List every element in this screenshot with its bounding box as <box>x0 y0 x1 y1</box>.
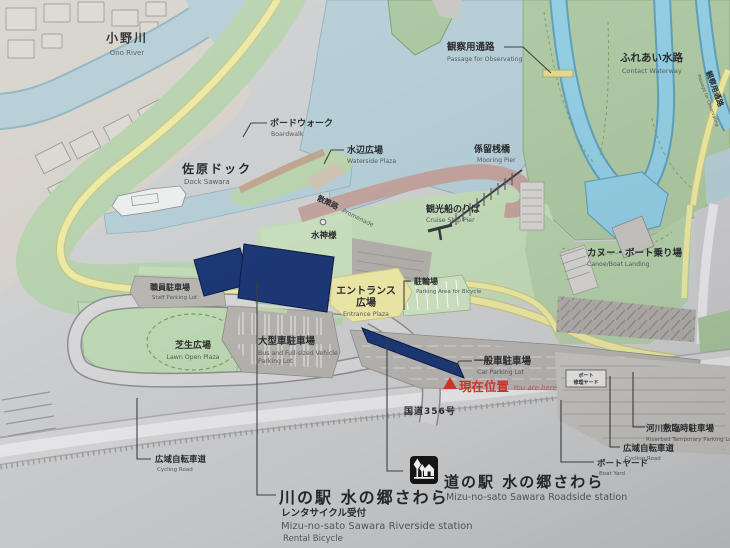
boat-yard-jp: ボートヤード <box>597 458 648 469</box>
observing-weir <box>543 70 573 77</box>
roadside-station-en: Mizu-no-sato Sawara Roadside station <box>446 492 627 503</box>
label-water-god: 水神様 <box>310 230 337 241</box>
canoe-jp: カヌー・ボート乗り場 <box>587 247 683 259</box>
park-map: 小野川 Ono River 観察用通路 Passage for Observat… <box>0 0 730 548</box>
staff-jp: 職員駐車場 <box>150 282 190 292</box>
roadside-station-jp: 道の駅 水の郷さわら <box>444 473 604 491</box>
ono-river-jp: 小野川 <box>106 30 148 45</box>
bus-en2: Parking Lot <box>258 358 293 365</box>
urban-building <box>44 4 70 22</box>
dock-sawara-en: Dock Sawara <box>184 178 230 186</box>
riverbed-jp: 河川敷臨時駐車場 <box>646 423 715 434</box>
dock-sawara-jp: 佐原ドック <box>181 161 252 176</box>
cruise-pier-en: Cruise Ship Pier <box>426 217 475 224</box>
bicycle-jp: 駐輪場 <box>414 276 438 286</box>
label-ono-river: 小野川 Ono River <box>106 30 148 57</box>
riverside-station-jp-sub: レンタサイクル受付 <box>281 507 367 519</box>
label-car-parking: 一般車駐車場 Car Parking Lot <box>474 355 532 376</box>
mooring-pier-en: Mooring Pier <box>477 157 516 164</box>
urban-building <box>42 34 62 48</box>
riverside-station-jp: 川の駅 水の郷さわら <box>278 488 449 507</box>
passage-en: Passage for Observating <box>447 56 523 63</box>
cruise-pier-jp: 観光船のりば <box>426 203 480 215</box>
suijin-shrine-mark <box>320 219 326 225</box>
lawn-jp: 芝生広場 <box>175 339 211 351</box>
current-location-jp: 現在位置 <box>459 379 510 394</box>
boardwalk-en: Boardwalk <box>271 131 304 138</box>
bus-en1: Bus and Full-sized Vehicle <box>258 350 338 357</box>
urban-building <box>8 40 34 58</box>
entrance-jp1: エントランス <box>336 285 396 297</box>
repair-jp2: 修理ヤード <box>572 379 598 386</box>
mooring-pier-jp: 係留桟橋 <box>474 143 511 155</box>
car-en: Car Parking Lot <box>477 369 525 376</box>
canoe-en: Canoe/Boat Landing <box>587 261 650 268</box>
urban-building <box>78 2 104 22</box>
right-edge-water <box>704 148 730 206</box>
urban-building <box>112 10 138 26</box>
bicycle-en: Parking Area for Bicycle <box>416 289 482 295</box>
entrance-jp2: 広場 <box>356 296 376 309</box>
entrance-en: Entrance Plaza <box>343 311 389 318</box>
staff-en: Staff Parking Lot <box>152 295 198 301</box>
urban-building <box>6 8 36 30</box>
riverside-station-en-sub: Rental Bicycle <box>283 534 343 544</box>
ono-river-en: Ono River <box>110 49 145 57</box>
car-jp: 一般車駐車場 <box>474 355 532 367</box>
label-contact-waterway: ふれあい水路 Contact Waterway <box>620 51 683 75</box>
waterside-jp: 水辺広場 <box>347 144 383 156</box>
label-cruise-ship-pier: 観光船のりば Cruise Ship Pier <box>426 203 480 224</box>
boardwalk-jp: ボードウォーク <box>270 117 333 129</box>
current-location-en: You are here <box>513 384 557 392</box>
urban-building <box>146 2 166 16</box>
waterside-en: Waterside Plaza <box>347 158 396 165</box>
contact-waterway-jp: ふれあい水路 <box>620 51 683 64</box>
water-god-jp: 水神様 <box>310 230 337 241</box>
contact-waterway-en: Contact Waterway <box>622 67 682 75</box>
riverside-station-en: Mizu-no-sato Sawara Riverside station <box>281 521 473 532</box>
label-mooring-pier: 係留桟橋 Mooring Pier <box>474 143 516 164</box>
map-board: 小野川 Ono River 観察用通路 Passage for Observat… <box>0 0 730 548</box>
passage-jp: 観察用通路 <box>447 41 495 53</box>
bus-jp: 大型車駐車場 <box>258 335 316 347</box>
cycling-left-en: Cycling Road <box>157 467 193 473</box>
repair-jp1: ボート <box>578 372 593 379</box>
cycling-left-jp: 広域自転車道 <box>155 454 207 465</box>
riverbed-en: Riverbed Temporary Parking Lot <box>646 437 730 443</box>
lawn-en: Lawn Open Plaza <box>167 354 220 361</box>
michi-no-eki-icon <box>410 456 438 484</box>
cycling-right-jp: 広域自転車道 <box>623 443 675 454</box>
label-route-356: 国道356号 <box>404 405 456 417</box>
route-356-jp: 国道356号 <box>404 405 456 417</box>
